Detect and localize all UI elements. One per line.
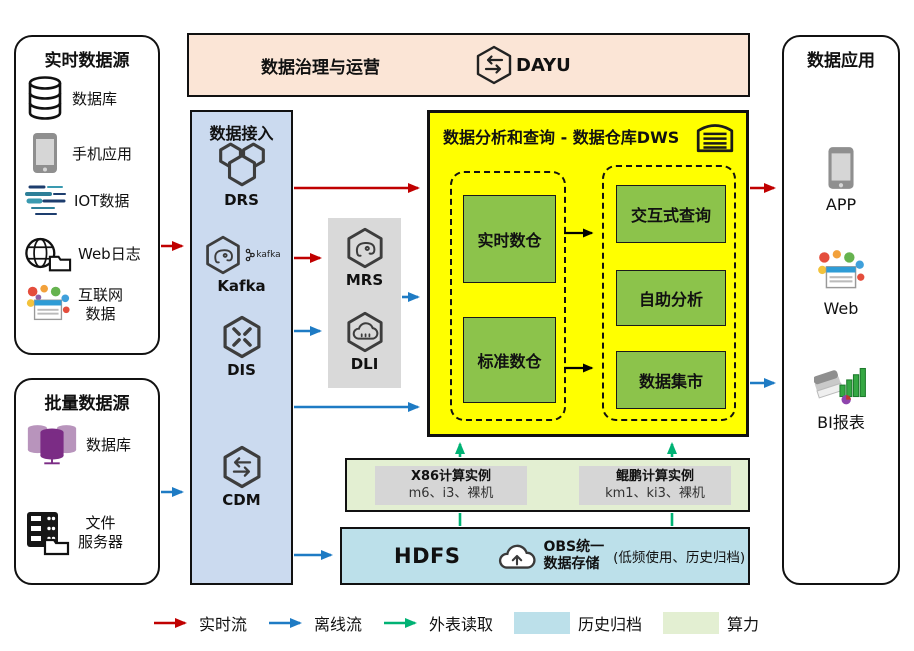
internet-data-icon <box>24 283 72 327</box>
data-ingest-title: 数据接入 <box>192 120 291 144</box>
governance-panel: 数据治理与运营 DAYU <box>187 33 750 97</box>
obs-label: OBS统一 数据存储 <box>543 539 604 573</box>
warehouse-icon <box>694 119 736 153</box>
database-icon <box>24 75 66 121</box>
service-label: Kafka <box>217 277 265 295</box>
service-label: DLI <box>351 355 379 373</box>
source-label: IOT数据 <box>74 190 129 211</box>
service-label: DRS <box>224 191 259 209</box>
storage-panel: HDFS OBS统一 数据存储 (低频使用、历史归档) <box>340 527 750 585</box>
list-item: MRS <box>328 226 401 289</box>
service-label: DIS <box>227 361 256 379</box>
list-item: Web日志 <box>24 233 154 273</box>
legend: 实时流 离线流 外表读取 历史归档 算力 <box>110 611 810 635</box>
legend-label: 外表读取 <box>429 611 493 635</box>
kafka-logo-icon <box>245 248 255 262</box>
list-item: 数据库 <box>24 75 154 121</box>
self-analysis-box: 自助分析 <box>616 270 726 326</box>
kunpeng-instance-box: 鲲鹏计算实例 km1、ki3、裸机 <box>579 466 731 505</box>
bi-report-icon <box>814 359 868 405</box>
storage-note: (低频使用、历史归档) <box>613 546 745 566</box>
app-label: Web <box>824 299 859 318</box>
data-ingest-panel: 数据接入 DRS <box>190 110 293 585</box>
instance-name: 鲲鹏计算实例 <box>616 469 694 486</box>
batch-sources-panel: 批量数据源 数据库 <box>14 378 160 585</box>
legend-label: 实时流 <box>199 611 247 635</box>
legend-item: 算力 <box>663 611 759 635</box>
dayu-label: DAYU <box>516 55 571 76</box>
list-item: 互联网 数据 <box>24 283 154 327</box>
data-apps-title: 数据应用 <box>784 46 898 71</box>
data-mart-box: 数据集市 <box>616 351 726 409</box>
instance-specs: m6、i3、裸机 <box>409 486 494 503</box>
x86-instance-box: X86计算实例 m6、i3、裸机 <box>375 466 527 505</box>
services-group: 交互式查询 自助分析 数据集市 <box>602 165 736 421</box>
list-item: APP <box>784 145 898 214</box>
source-label: 互联网 数据 <box>78 286 123 324</box>
service-label: CDM <box>222 491 260 509</box>
cdm-icon <box>219 444 265 490</box>
compute-swatch <box>663 612 719 634</box>
iot-icon <box>24 181 68 219</box>
instance-specs: km1、ki3、裸机 <box>605 486 705 503</box>
offline-flow-arrow-icon <box>268 617 306 629</box>
dli-icon <box>343 310 387 354</box>
dis-icon <box>219 314 265 360</box>
service-label: MRS <box>346 271 383 289</box>
hdfs-label: HDFS <box>394 544 460 568</box>
source-label: 手机应用 <box>72 143 132 164</box>
warehouse-group: 实时数仓 标准数仓 <box>450 171 566 421</box>
source-label: Web日志 <box>78 243 141 264</box>
dws-architecture-diagram: 数据治理与运营 DAYU 实时数据源 数据库 <box>0 0 914 651</box>
instance-name: X86计算实例 <box>411 469 491 486</box>
dws-title: 数据分析和查询 - 数据仓库DWS <box>443 124 679 148</box>
realtime-warehouse-box: 实时数仓 <box>463 195 556 283</box>
list-item: DRS <box>192 142 291 209</box>
legend-label: 历史归档 <box>578 611 642 635</box>
drs-icon <box>216 142 268 190</box>
source-label: 数据库 <box>72 88 117 109</box>
legend-item: 实时流 <box>153 611 247 635</box>
legend-item: 离线流 <box>268 611 362 635</box>
list-item: 手机应用 <box>24 131 154 175</box>
list-item: IOT数据 <box>24 181 154 219</box>
phone-icon <box>24 131 66 175</box>
kafka-badge: kafka <box>245 248 280 262</box>
legend-item: 外表读取 <box>383 611 493 635</box>
dayu-product: DAYU <box>475 45 571 85</box>
processing-panel: MRS DLI <box>328 218 401 388</box>
list-item: CDM <box>192 444 291 509</box>
list-item: 文件 服务器 <box>24 510 154 556</box>
realtime-flow-arrow-icon <box>153 617 191 629</box>
dws-panel: 数据分析和查询 - 数据仓库DWS 实时数仓 标准数仓 交互式查询 自助分析 数… <box>427 110 749 437</box>
mrs-icon <box>343 226 387 270</box>
obs-cloud-icon <box>496 540 538 572</box>
legend-label: 算力 <box>727 611 759 635</box>
legend-label: 离线流 <box>314 611 362 635</box>
app-label: BI报表 <box>817 409 865 433</box>
app-label: APP <box>826 195 856 214</box>
batch-sources-title: 批量数据源 <box>16 389 158 414</box>
source-label: 文件 服务器 <box>78 514 123 552</box>
legend-item: 历史归档 <box>514 611 642 635</box>
external-read-arrow-icon <box>383 617 421 629</box>
list-item: BI报表 <box>784 359 898 433</box>
list-item: kafka Kafka <box>192 234 291 295</box>
web-log-icon <box>24 233 72 273</box>
governance-title: 数据治理与运营 <box>261 53 380 78</box>
realtime-sources-title: 实时数据源 <box>16 46 158 71</box>
compute-panel: X86计算实例 m6、i3、裸机 鲲鹏计算实例 km1、ki3、裸机 <box>345 458 750 512</box>
standard-warehouse-box: 标准数仓 <box>463 317 556 403</box>
file-server-icon <box>24 510 72 556</box>
web-icon <box>815 249 867 295</box>
list-item: Web <box>784 249 898 318</box>
app-phone-icon <box>825 145 857 191</box>
database-cluster-icon <box>24 420 80 468</box>
history-archive-swatch <box>514 612 570 634</box>
list-item: DIS <box>192 314 291 379</box>
list-item: 数据库 <box>24 420 154 468</box>
data-apps-panel: 数据应用 APP Web <box>782 35 900 585</box>
kafka-icon <box>202 234 244 276</box>
interactive-query-box: 交互式查询 <box>616 185 726 243</box>
dayu-icon <box>475 45 513 85</box>
list-item: DLI <box>328 310 401 373</box>
realtime-sources-panel: 实时数据源 数据库 手机应用 <box>14 35 160 355</box>
source-label: 数据库 <box>86 434 131 455</box>
